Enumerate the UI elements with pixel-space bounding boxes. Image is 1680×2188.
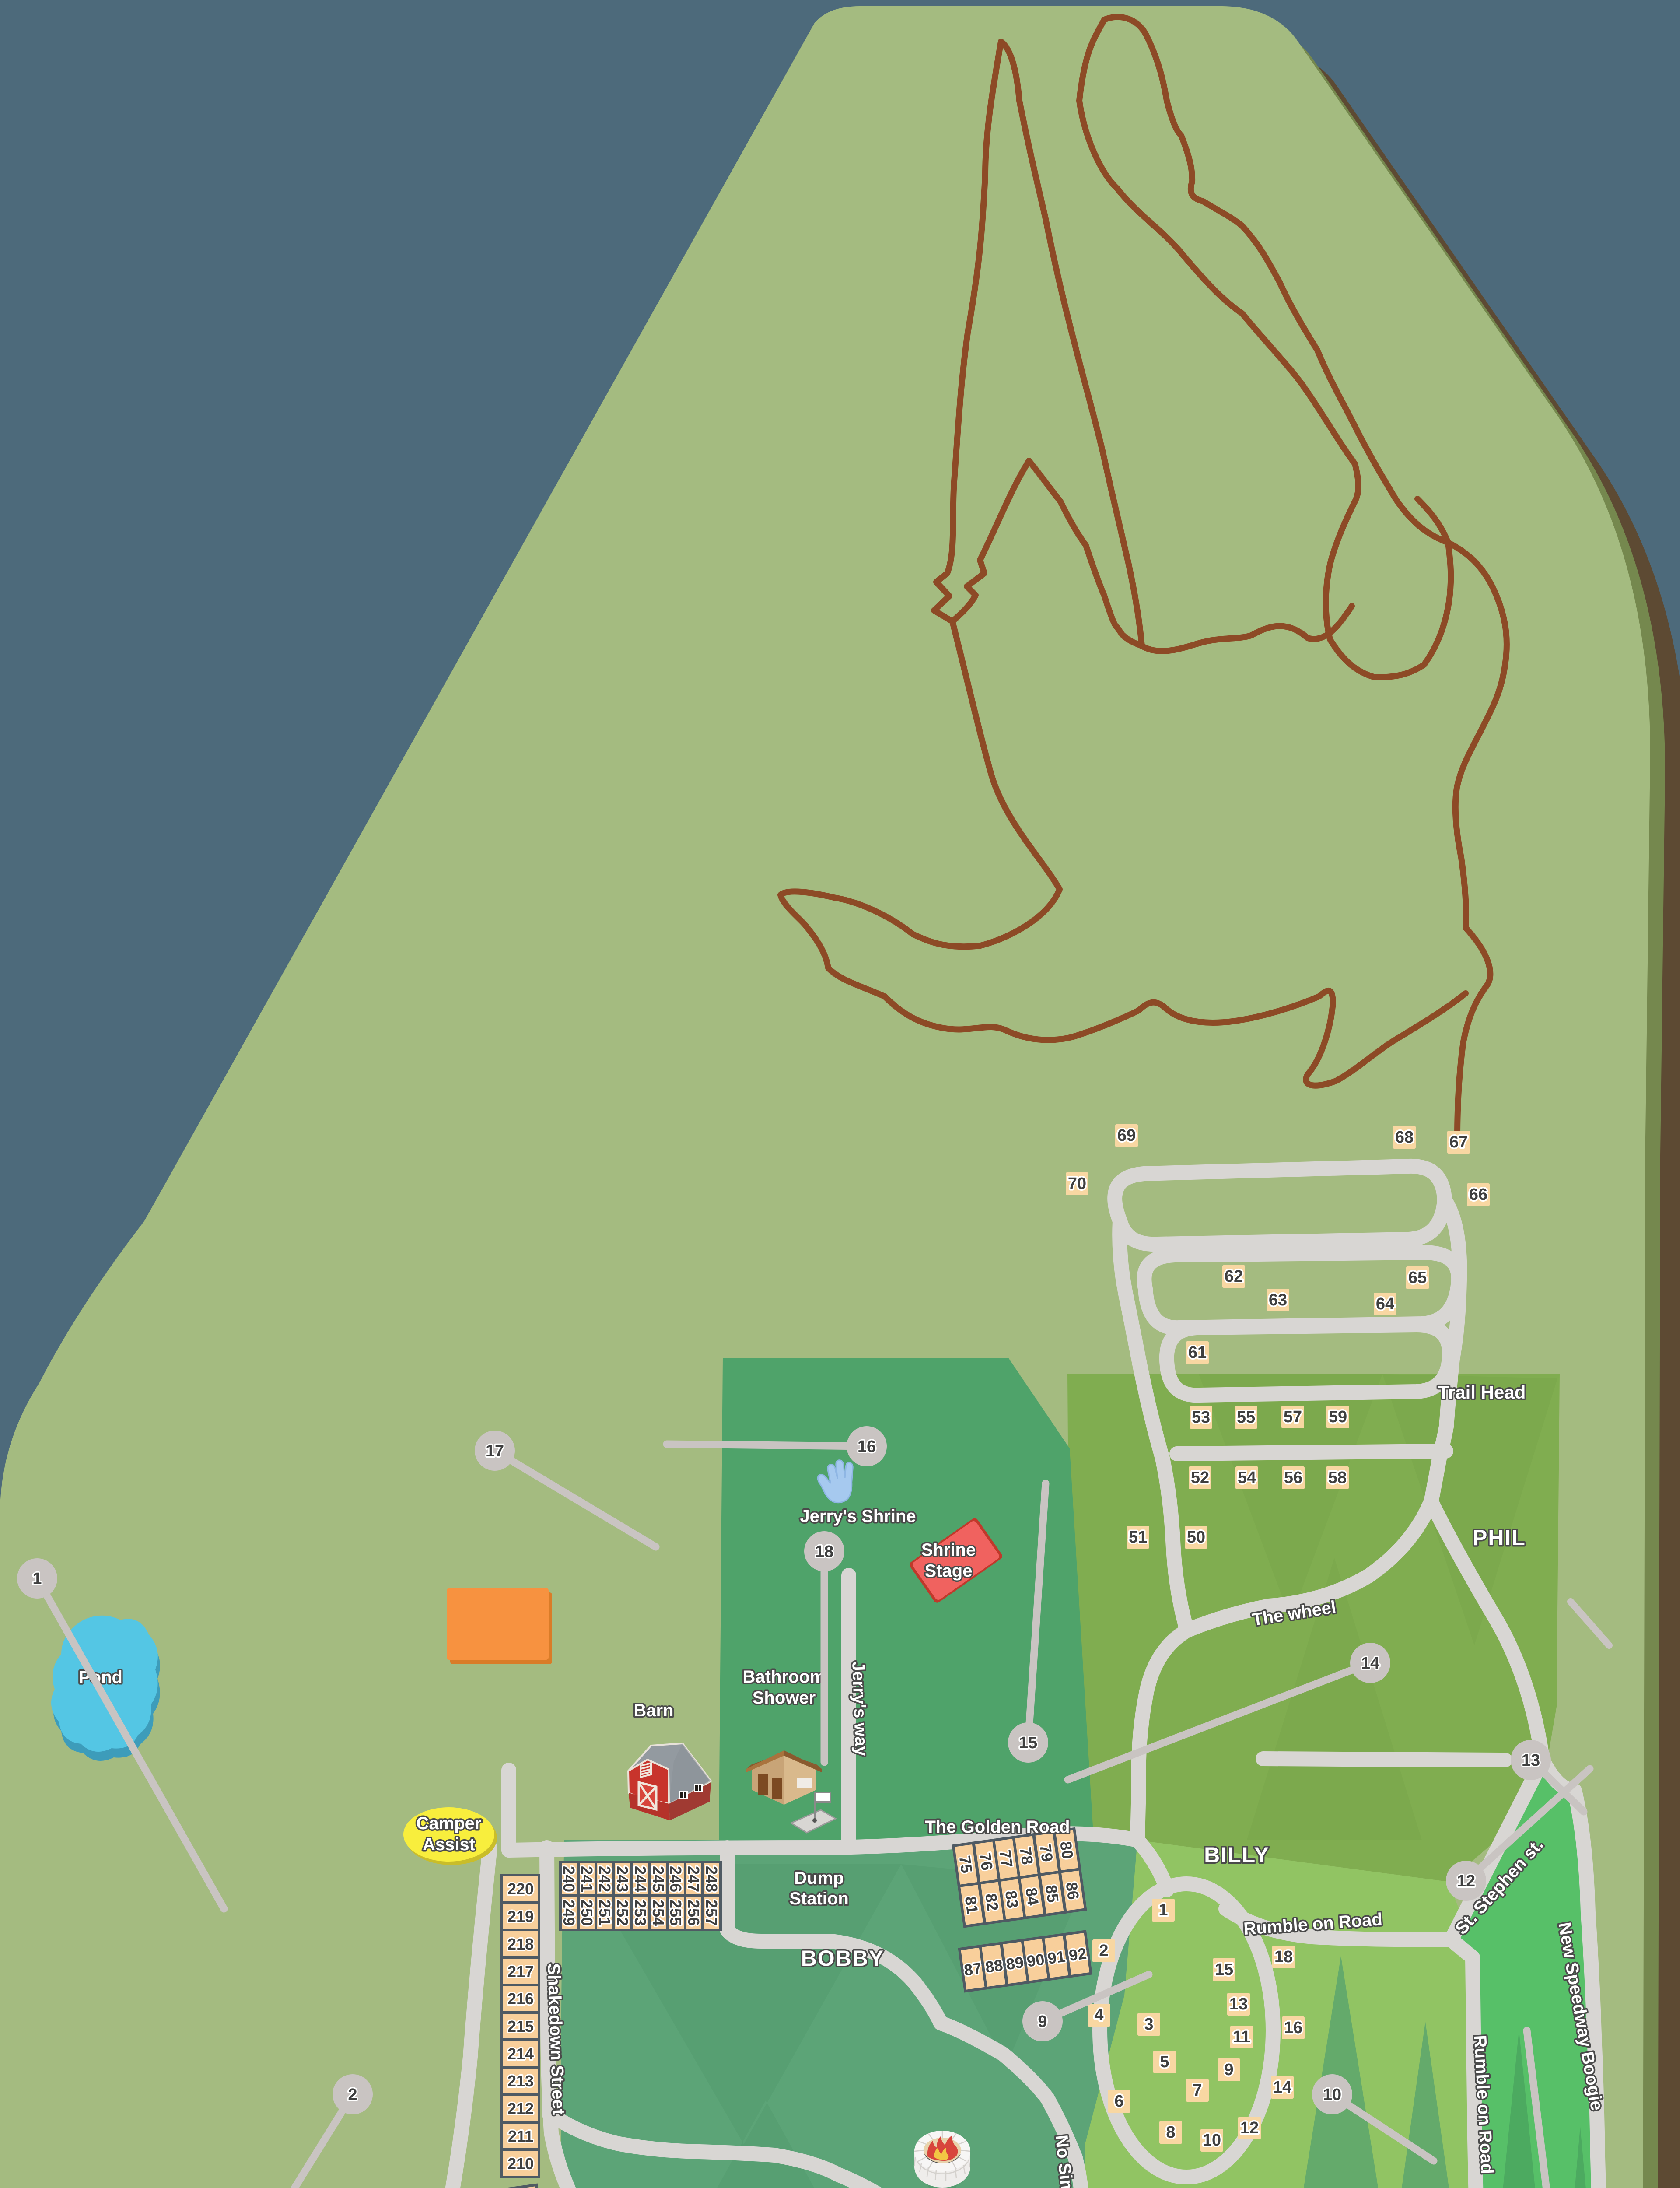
svg-text:Trail Head: Trail Head <box>1438 1382 1526 1403</box>
svg-text:18: 18 <box>1274 1948 1293 1966</box>
svg-text:216: 216 <box>507 1990 534 2008</box>
svg-text:6: 6 <box>1114 2092 1123 2111</box>
svg-text:83: 83 <box>1002 1890 1022 1909</box>
svg-text:246: 246 <box>667 1866 685 1892</box>
svg-text:243: 243 <box>613 1866 631 1892</box>
svg-text:Jerry's Shrine: Jerry's Shrine <box>800 1507 916 1526</box>
svg-text:52: 52 <box>1191 1469 1209 1487</box>
svg-text:9: 9 <box>1038 2013 1047 2031</box>
svg-text:53: 53 <box>1192 1408 1210 1427</box>
svg-text:256: 256 <box>685 1900 703 1926</box>
svg-text:213: 213 <box>507 2072 534 2090</box>
svg-text:217: 217 <box>507 1963 534 1981</box>
svg-text:14: 14 <box>1273 2078 1291 2097</box>
svg-text:70: 70 <box>1068 1175 1086 1193</box>
svg-text:Bathroom: Bathroom <box>743 1667 826 1687</box>
svg-text:Assist: Assist <box>423 1835 475 1854</box>
svg-text:218: 218 <box>507 1935 534 1953</box>
svg-text:18: 18 <box>815 1543 833 1561</box>
svg-text:244: 244 <box>631 1866 649 1892</box>
svg-text:50: 50 <box>1187 1528 1205 1546</box>
svg-text:Dump: Dump <box>794 1869 843 1888</box>
svg-text:250: 250 <box>578 1900 596 1926</box>
svg-text:12: 12 <box>1457 1872 1475 1890</box>
svg-text:211: 211 <box>508 2127 533 2145</box>
svg-text:62: 62 <box>1225 1267 1243 1286</box>
svg-text:5: 5 <box>1160 2053 1169 2071</box>
svg-text:7: 7 <box>1193 2081 1202 2100</box>
svg-text:248: 248 <box>703 1866 721 1892</box>
svg-text:Shower: Shower <box>752 1688 815 1708</box>
svg-text:210: 210 <box>507 2155 534 2173</box>
svg-text:17: 17 <box>486 1442 504 1460</box>
svg-text:1: 1 <box>32 1570 42 1588</box>
svg-text:253: 253 <box>631 1900 649 1926</box>
svg-text:80: 80 <box>1057 1840 1077 1860</box>
svg-text:16: 16 <box>857 1438 876 1456</box>
svg-text:251: 251 <box>596 1900 614 1926</box>
svg-text:79: 79 <box>1036 1843 1057 1863</box>
svg-text:78: 78 <box>1016 1846 1036 1865</box>
svg-text:77: 77 <box>996 1849 1016 1869</box>
svg-text:14: 14 <box>1361 1654 1379 1673</box>
svg-text:13: 13 <box>1522 1751 1540 1770</box>
svg-text:214: 214 <box>507 2045 534 2063</box>
svg-text:82: 82 <box>982 1892 1002 1912</box>
svg-text:11: 11 <box>1233 2028 1250 2046</box>
svg-text:15: 15 <box>1019 1734 1037 1752</box>
svg-text:8: 8 <box>1166 2123 1175 2142</box>
svg-text:10: 10 <box>1323 2086 1341 2104</box>
svg-text:Camper: Camper <box>416 1814 482 1833</box>
svg-text:90: 90 <box>1026 1950 1046 1970</box>
svg-text:85: 85 <box>1042 1884 1062 1904</box>
svg-text:84: 84 <box>1022 1886 1042 1906</box>
svg-text:4: 4 <box>1094 2006 1103 2024</box>
svg-text:2: 2 <box>348 2086 357 2104</box>
svg-text:Station: Station <box>789 1889 849 1908</box>
svg-text:61: 61 <box>1188 1343 1207 1362</box>
svg-text:254: 254 <box>649 1900 667 1926</box>
svg-text:3: 3 <box>1144 2015 1153 2034</box>
svg-text:91: 91 <box>1046 1947 1066 1967</box>
svg-text:215: 215 <box>507 2017 534 2035</box>
svg-text:58: 58 <box>1328 1469 1347 1487</box>
svg-text:Stage: Stage <box>925 1561 973 1581</box>
svg-text:BOBBY: BOBBY <box>801 1946 885 1971</box>
svg-text:89: 89 <box>1005 1953 1025 1973</box>
svg-text:212: 212 <box>507 2100 534 2118</box>
svg-text:Barn: Barn <box>633 1701 673 1720</box>
svg-text:10: 10 <box>1203 2131 1221 2149</box>
svg-text:59: 59 <box>1329 1408 1347 1426</box>
svg-text:252: 252 <box>613 1900 631 1926</box>
svg-text:2: 2 <box>1099 1942 1108 1960</box>
svg-text:69: 69 <box>1117 1126 1136 1145</box>
svg-text:92: 92 <box>1068 1944 1088 1964</box>
svg-text:PHIL: PHIL <box>1473 1525 1526 1550</box>
svg-text:64: 64 <box>1376 1295 1394 1313</box>
svg-text:219: 219 <box>507 1907 534 1925</box>
svg-text:16: 16 <box>1284 2019 1302 2037</box>
svg-text:247: 247 <box>685 1866 703 1892</box>
svg-text:9: 9 <box>1224 2061 1233 2079</box>
svg-text:Shrine: Shrine <box>921 1540 976 1560</box>
svg-text:15: 15 <box>1215 1960 1233 1979</box>
svg-text:242: 242 <box>596 1866 614 1892</box>
svg-text:255: 255 <box>667 1900 685 1926</box>
svg-text:245: 245 <box>649 1866 667 1892</box>
svg-text:57: 57 <box>1284 1408 1302 1426</box>
svg-text:220: 220 <box>507 1880 534 1898</box>
svg-text:12: 12 <box>1240 2119 1259 2137</box>
svg-text:75: 75 <box>956 1855 976 1874</box>
svg-text:51: 51 <box>1129 1528 1147 1546</box>
svg-text:BILLY: BILLY <box>1204 1843 1270 1867</box>
svg-text:87: 87 <box>963 1959 983 1979</box>
svg-text:68: 68 <box>1395 1128 1414 1147</box>
svg-text:88: 88 <box>984 1956 1004 1976</box>
svg-text:13: 13 <box>1229 1995 1248 2013</box>
svg-text:241: 241 <box>578 1866 596 1892</box>
svg-text:76: 76 <box>976 1851 996 1871</box>
svg-text:257: 257 <box>703 1900 721 1926</box>
svg-text:56: 56 <box>1284 1469 1302 1487</box>
svg-text:54: 54 <box>1238 1469 1256 1487</box>
svg-text:240: 240 <box>560 1866 578 1892</box>
svg-text:63: 63 <box>1269 1291 1287 1309</box>
svg-text:The Golden Road: The Golden Road <box>925 1817 1070 1837</box>
svg-text:65: 65 <box>1408 1269 1427 1287</box>
svg-text:1: 1 <box>1158 1901 1168 1919</box>
svg-text:67: 67 <box>1449 1133 1468 1151</box>
svg-text:86: 86 <box>1062 1881 1082 1900</box>
svg-text:249: 249 <box>560 1900 578 1926</box>
svg-text:Jerry's way: Jerry's way <box>848 1661 871 1757</box>
svg-text:66: 66 <box>1469 1185 1487 1204</box>
svg-text:81: 81 <box>962 1895 982 1915</box>
svg-text:55: 55 <box>1237 1408 1255 1427</box>
